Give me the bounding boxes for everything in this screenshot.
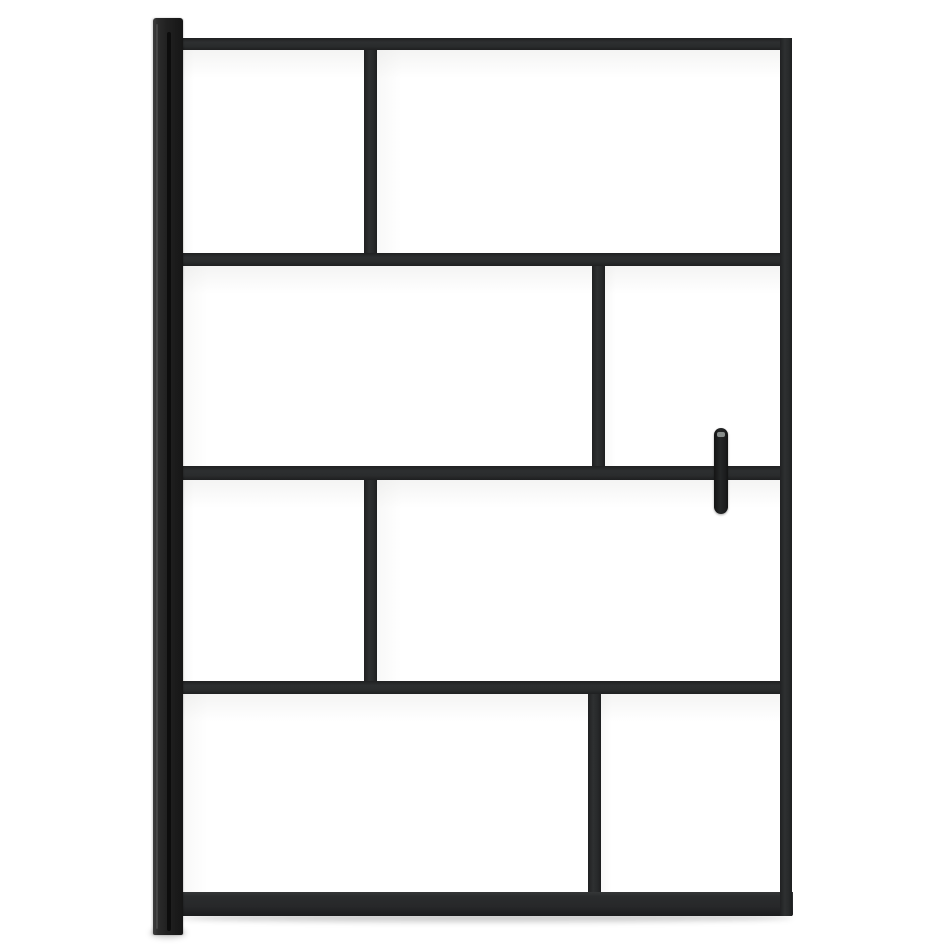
mullion-row3 bbox=[364, 480, 377, 681]
glass-panel-row2-left bbox=[183, 266, 592, 466]
middle-rail-1 bbox=[183, 253, 780, 266]
wall-profile bbox=[153, 18, 183, 935]
glass-panel-row4-left bbox=[183, 694, 588, 892]
wall-profile-highlight bbox=[156, 24, 158, 929]
bottom-rail bbox=[180, 892, 793, 916]
shower-screen-product-photo bbox=[0, 0, 947, 947]
glass-panel-row1-left bbox=[183, 50, 364, 253]
mullion-row2 bbox=[592, 266, 605, 466]
handle-highlight-notch bbox=[717, 432, 725, 437]
glass-panel-row1-right bbox=[377, 50, 780, 253]
door-handle bbox=[714, 428, 728, 514]
glass-panel-row2-right bbox=[605, 266, 780, 466]
top-rail bbox=[183, 38, 792, 50]
glass-panel-row3-left bbox=[183, 480, 364, 681]
wall-profile-groove bbox=[167, 32, 171, 931]
right-stile bbox=[780, 38, 792, 916]
glass-panel-row4-right bbox=[601, 694, 780, 892]
middle-rail-3 bbox=[183, 681, 780, 694]
mullion-row1 bbox=[364, 50, 377, 253]
mullion-row4 bbox=[588, 694, 601, 892]
middle-rail-2 bbox=[183, 466, 780, 480]
